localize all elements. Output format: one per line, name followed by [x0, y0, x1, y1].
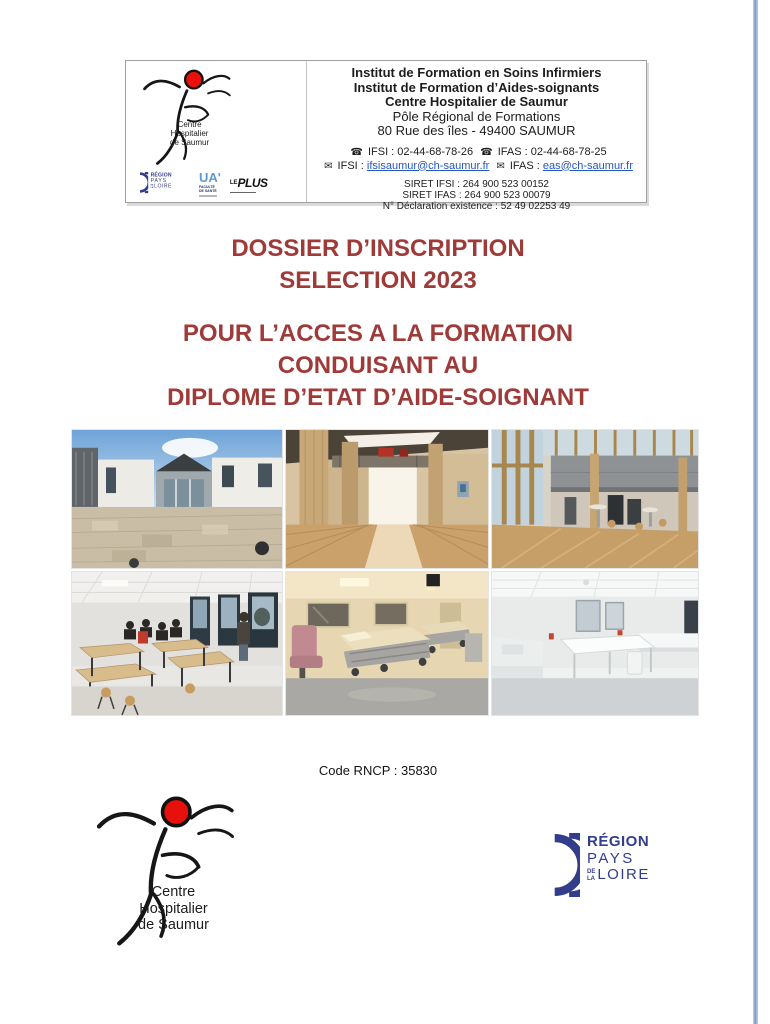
region-word: LA — [587, 876, 595, 883]
ch-saumur-logo: Centre Hospitalier de Saumur — [134, 63, 238, 169]
title-block: DOSSIER D’INSCRIPTION SELECTION 2023 POU… — [0, 233, 756, 414]
declaration-line: N° Déclaration existence : 52 49 02253 4… — [307, 201, 646, 212]
phone-ifsi: IFSI : 02-44-68-78-26 — [368, 146, 473, 158]
ua-mark: UA' — [199, 171, 221, 184]
photo-classroom — [72, 572, 282, 715]
siret-line: SIRET IFAS : 264 900 523 00079 — [307, 190, 646, 201]
le-plus-logo: LEPLUS — [230, 175, 268, 194]
siret-line: SIRET IFSI : 264 900 523 00152 — [307, 179, 646, 190]
campus-photo-grid — [72, 430, 698, 715]
photo-practice-room — [492, 572, 698, 715]
institution-line: Pôle Régional de Formations — [307, 110, 646, 125]
ch-caption-line: Centre — [138, 884, 209, 901]
ch-logo-caption: Centre Hospitalier de Saumur — [138, 884, 209, 934]
photo-simulation-room — [286, 572, 488, 715]
ua-sub-line: DE SANTÉ — [199, 189, 221, 193]
phone-ifas: IFAS : 02-44-68-78-25 — [498, 146, 607, 158]
institution-line: Centre Hospitalier de Saumur — [307, 95, 646, 110]
envelope-icon: ✉ — [496, 161, 504, 172]
email-ifas-label: IFAS : — [510, 160, 540, 172]
title-line: DOSSIER D’INSCRIPTION — [0, 233, 756, 265]
region-pays-de-la-loire-logo-small: RÉGION PAYS DE LA LOIRE — [138, 172, 190, 196]
photo-atrium-hall — [492, 430, 698, 568]
dancing-figure-icon — [134, 63, 238, 169]
letterhead-logo-cell: Centre Hospitalier de Saumur RÉGION PAY — [126, 61, 307, 202]
leplus-plus: PLUS — [238, 176, 268, 190]
institution-line: 80 Rue des îles - 49400 SAUMUR — [307, 124, 646, 139]
email-ifsi-label: IFSI : — [338, 160, 364, 172]
region-arcs-icon — [138, 172, 148, 193]
ch-caption-line: Centre — [170, 120, 209, 129]
partner-logos-row: RÉGION PAYS DE LA LOIRE — [138, 171, 300, 197]
letterhead-text-cell: Institut de Formation en Soins Infirmier… — [307, 61, 646, 202]
institution-line: Institut de Formation d’Aides-soignants — [307, 81, 646, 96]
institution-line: Institut de Formation en Soins Infirmier… — [307, 66, 646, 81]
ch-caption-line: Hospitalier — [138, 901, 209, 918]
ua-bar — [199, 195, 217, 197]
title-line: DIPLOME D’ETAT D’AIDE-SOIGNANT — [0, 382, 756, 414]
document-page: Centre Hospitalier de Saumur RÉGION PAY — [0, 0, 770, 1024]
photo-wood-hallway — [286, 430, 488, 568]
title-line: SELECTION 2023 — [0, 265, 756, 297]
ch-caption-line: de Saumur — [138, 917, 209, 934]
email-ifas-link[interactable]: eas@ch-saumur.fr — [543, 160, 633, 172]
leplus-bar — [230, 192, 256, 194]
email-ifsi-link[interactable]: ifsisaumur@ch-saumur.fr — [367, 160, 489, 172]
region-word: PAYS — [587, 850, 650, 867]
region-word: LA — [151, 186, 154, 188]
ch-caption-line: Hospitalier — [170, 129, 209, 138]
phone-line: ☎ IFSI : 02-44-68-78-26 ☎ IFAS : 02-44-6… — [307, 146, 646, 159]
ua-faculte-sante-logo: UA' FACULTÉ DE SANTÉ — [199, 171, 221, 197]
region-word: LOIRE — [597, 867, 650, 882]
ch-caption-line: de Saumur — [170, 138, 209, 147]
page-edge-stripe — [753, 0, 758, 1024]
rncp-code-line: Code RNCP : 35830 — [0, 763, 756, 778]
email-line: ✉ IFSI : ifsisaumur@ch-saumur.fr ✉ IFAS … — [307, 160, 646, 173]
leplus-le: LE — [230, 180, 238, 186]
region-pays-de-la-loire-logo: RÉGION PAYS DE LA LOIRE — [548, 833, 650, 897]
region-word: RÉGION — [587, 833, 650, 850]
registration-block: SIRET IFSI : 264 900 523 00152 SIRET IFA… — [307, 179, 646, 212]
title-line: POUR L’ACCES A LA FORMATION — [0, 318, 756, 350]
envelope-icon: ✉ — [324, 161, 332, 172]
letterhead-box: Centre Hospitalier de Saumur RÉGION PAY — [125, 60, 647, 203]
phone-icon: ☎ — [350, 147, 362, 158]
phone-icon: ☎ — [480, 147, 492, 158]
region-word: LOIRE — [154, 184, 172, 189]
photo-campus-exterior — [72, 430, 282, 568]
ch-saumur-logo-footer: Centre Hospitalier de Saumur — [78, 786, 250, 952]
ch-logo-caption: Centre Hospitalier de Saumur — [170, 120, 209, 147]
title-line: CONDUISANT AU — [0, 350, 756, 382]
region-arcs-icon — [548, 833, 580, 897]
